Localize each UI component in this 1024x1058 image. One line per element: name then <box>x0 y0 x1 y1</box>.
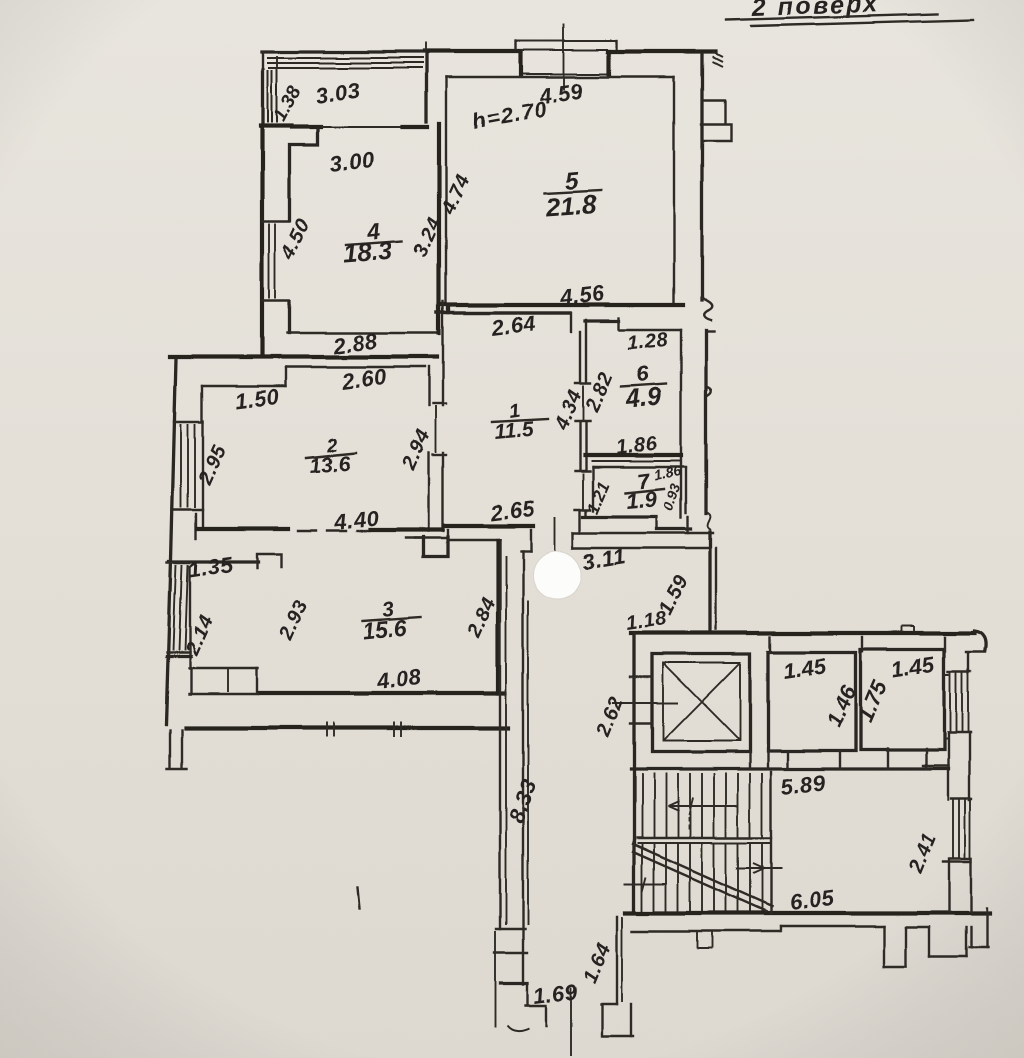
svg-text:11.5: 11.5 <box>493 418 534 444</box>
svg-text:1.9: 1.9 <box>625 486 658 514</box>
svg-text:15.6: 15.6 <box>361 614 408 644</box>
svg-text:1.28: 1.28 <box>626 329 669 355</box>
svg-text:4.56: 4.56 <box>558 280 606 310</box>
svg-text:18.3: 18.3 <box>342 237 393 268</box>
svg-text:4.40: 4.40 <box>332 505 380 535</box>
svg-text:13.6: 13.6 <box>309 452 352 478</box>
svg-text:21.8: 21.8 <box>544 188 598 222</box>
svg-text:4.9: 4.9 <box>623 381 663 414</box>
